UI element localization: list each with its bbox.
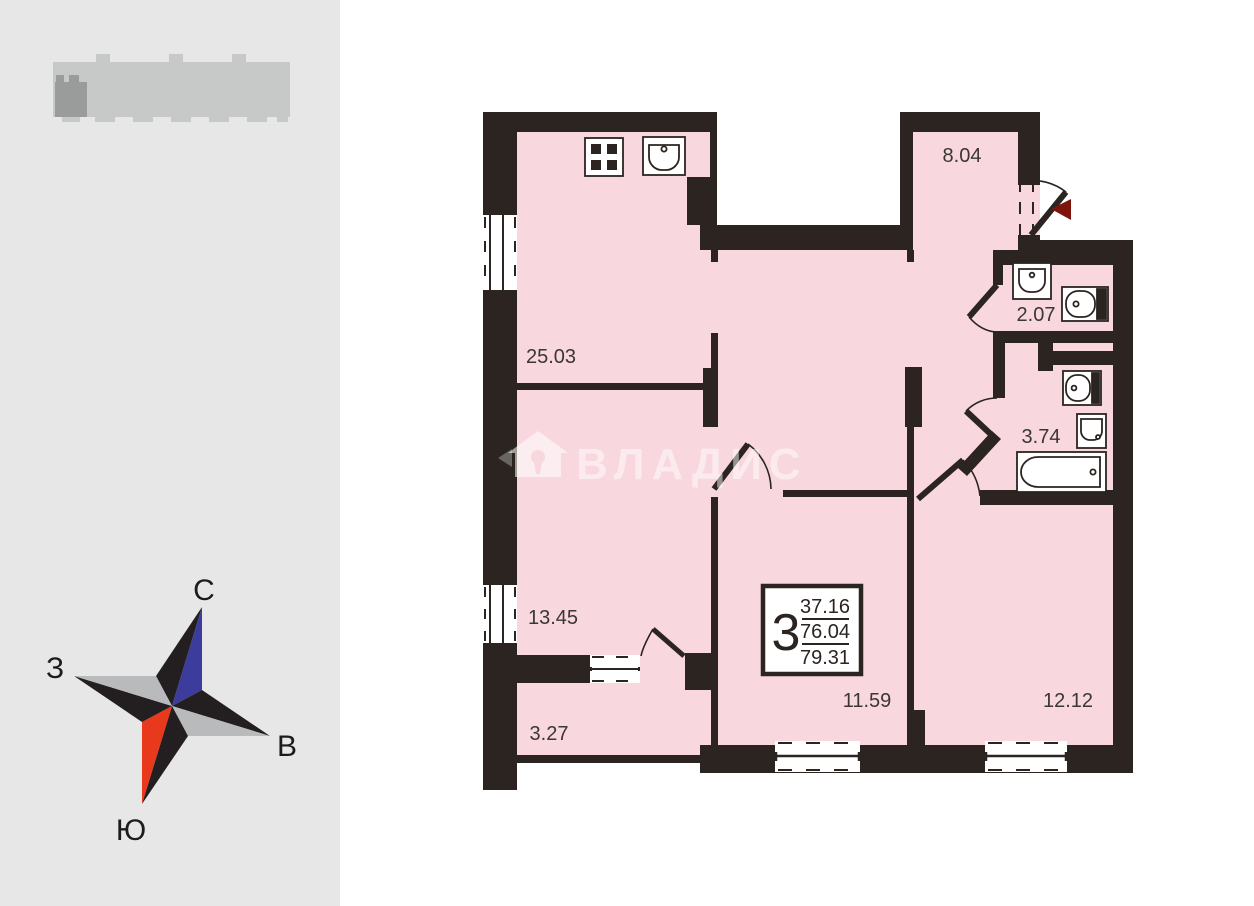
usable-area-value: 76.04 bbox=[800, 621, 850, 643]
compass-south-label: Ю bbox=[116, 814, 146, 847]
kitchen-sink-icon bbox=[643, 137, 685, 175]
room-area-hallway: 8.04 bbox=[943, 145, 982, 167]
stove-icon bbox=[585, 138, 623, 176]
compass-west-label: З bbox=[46, 652, 64, 685]
window-room-3 bbox=[985, 741, 1067, 772]
floorplan-canvas: С Ю З В bbox=[0, 0, 1254, 906]
watermark-text: ВЛАДИС bbox=[576, 440, 808, 489]
room-area-wc: 2.07 bbox=[1017, 304, 1056, 326]
window-bedroom-1 bbox=[483, 585, 517, 643]
sidebar-panel bbox=[0, 0, 340, 906]
room-area-kitchen-living: 25.03 bbox=[526, 346, 576, 368]
wc-sink-icon bbox=[1013, 263, 1051, 299]
building-silhouette-icon bbox=[53, 54, 290, 122]
window-room-2 bbox=[775, 741, 860, 772]
rooms-count: 3 bbox=[772, 604, 801, 662]
bathroom-sink-icon bbox=[1077, 414, 1106, 448]
compass-north-label: С bbox=[193, 574, 215, 607]
room-area-bedroom-1: 13.45 bbox=[528, 607, 578, 629]
room-area-bathroom: 3.74 bbox=[1022, 426, 1061, 448]
compass-east-label: В bbox=[277, 730, 297, 763]
room-area-room-3: 12.12 bbox=[1043, 690, 1093, 712]
wc-toilet-icon bbox=[1062, 287, 1108, 321]
floorplan-page: С Ю З В bbox=[0, 0, 1254, 906]
bathtub-icon bbox=[1017, 452, 1106, 492]
window-loggia bbox=[590, 655, 640, 683]
total-area-value: 79.31 bbox=[800, 647, 850, 669]
window-kitchen bbox=[483, 215, 517, 290]
bathroom-toilet-icon bbox=[1063, 371, 1101, 405]
room-area-room-2: 11.59 bbox=[843, 690, 892, 712]
living-area-value: 37.16 bbox=[800, 596, 850, 618]
room-area-loggia: 3.27 bbox=[530, 723, 569, 745]
apartment-info-box: 3 37.16 76.04 79.31 bbox=[763, 586, 861, 674]
